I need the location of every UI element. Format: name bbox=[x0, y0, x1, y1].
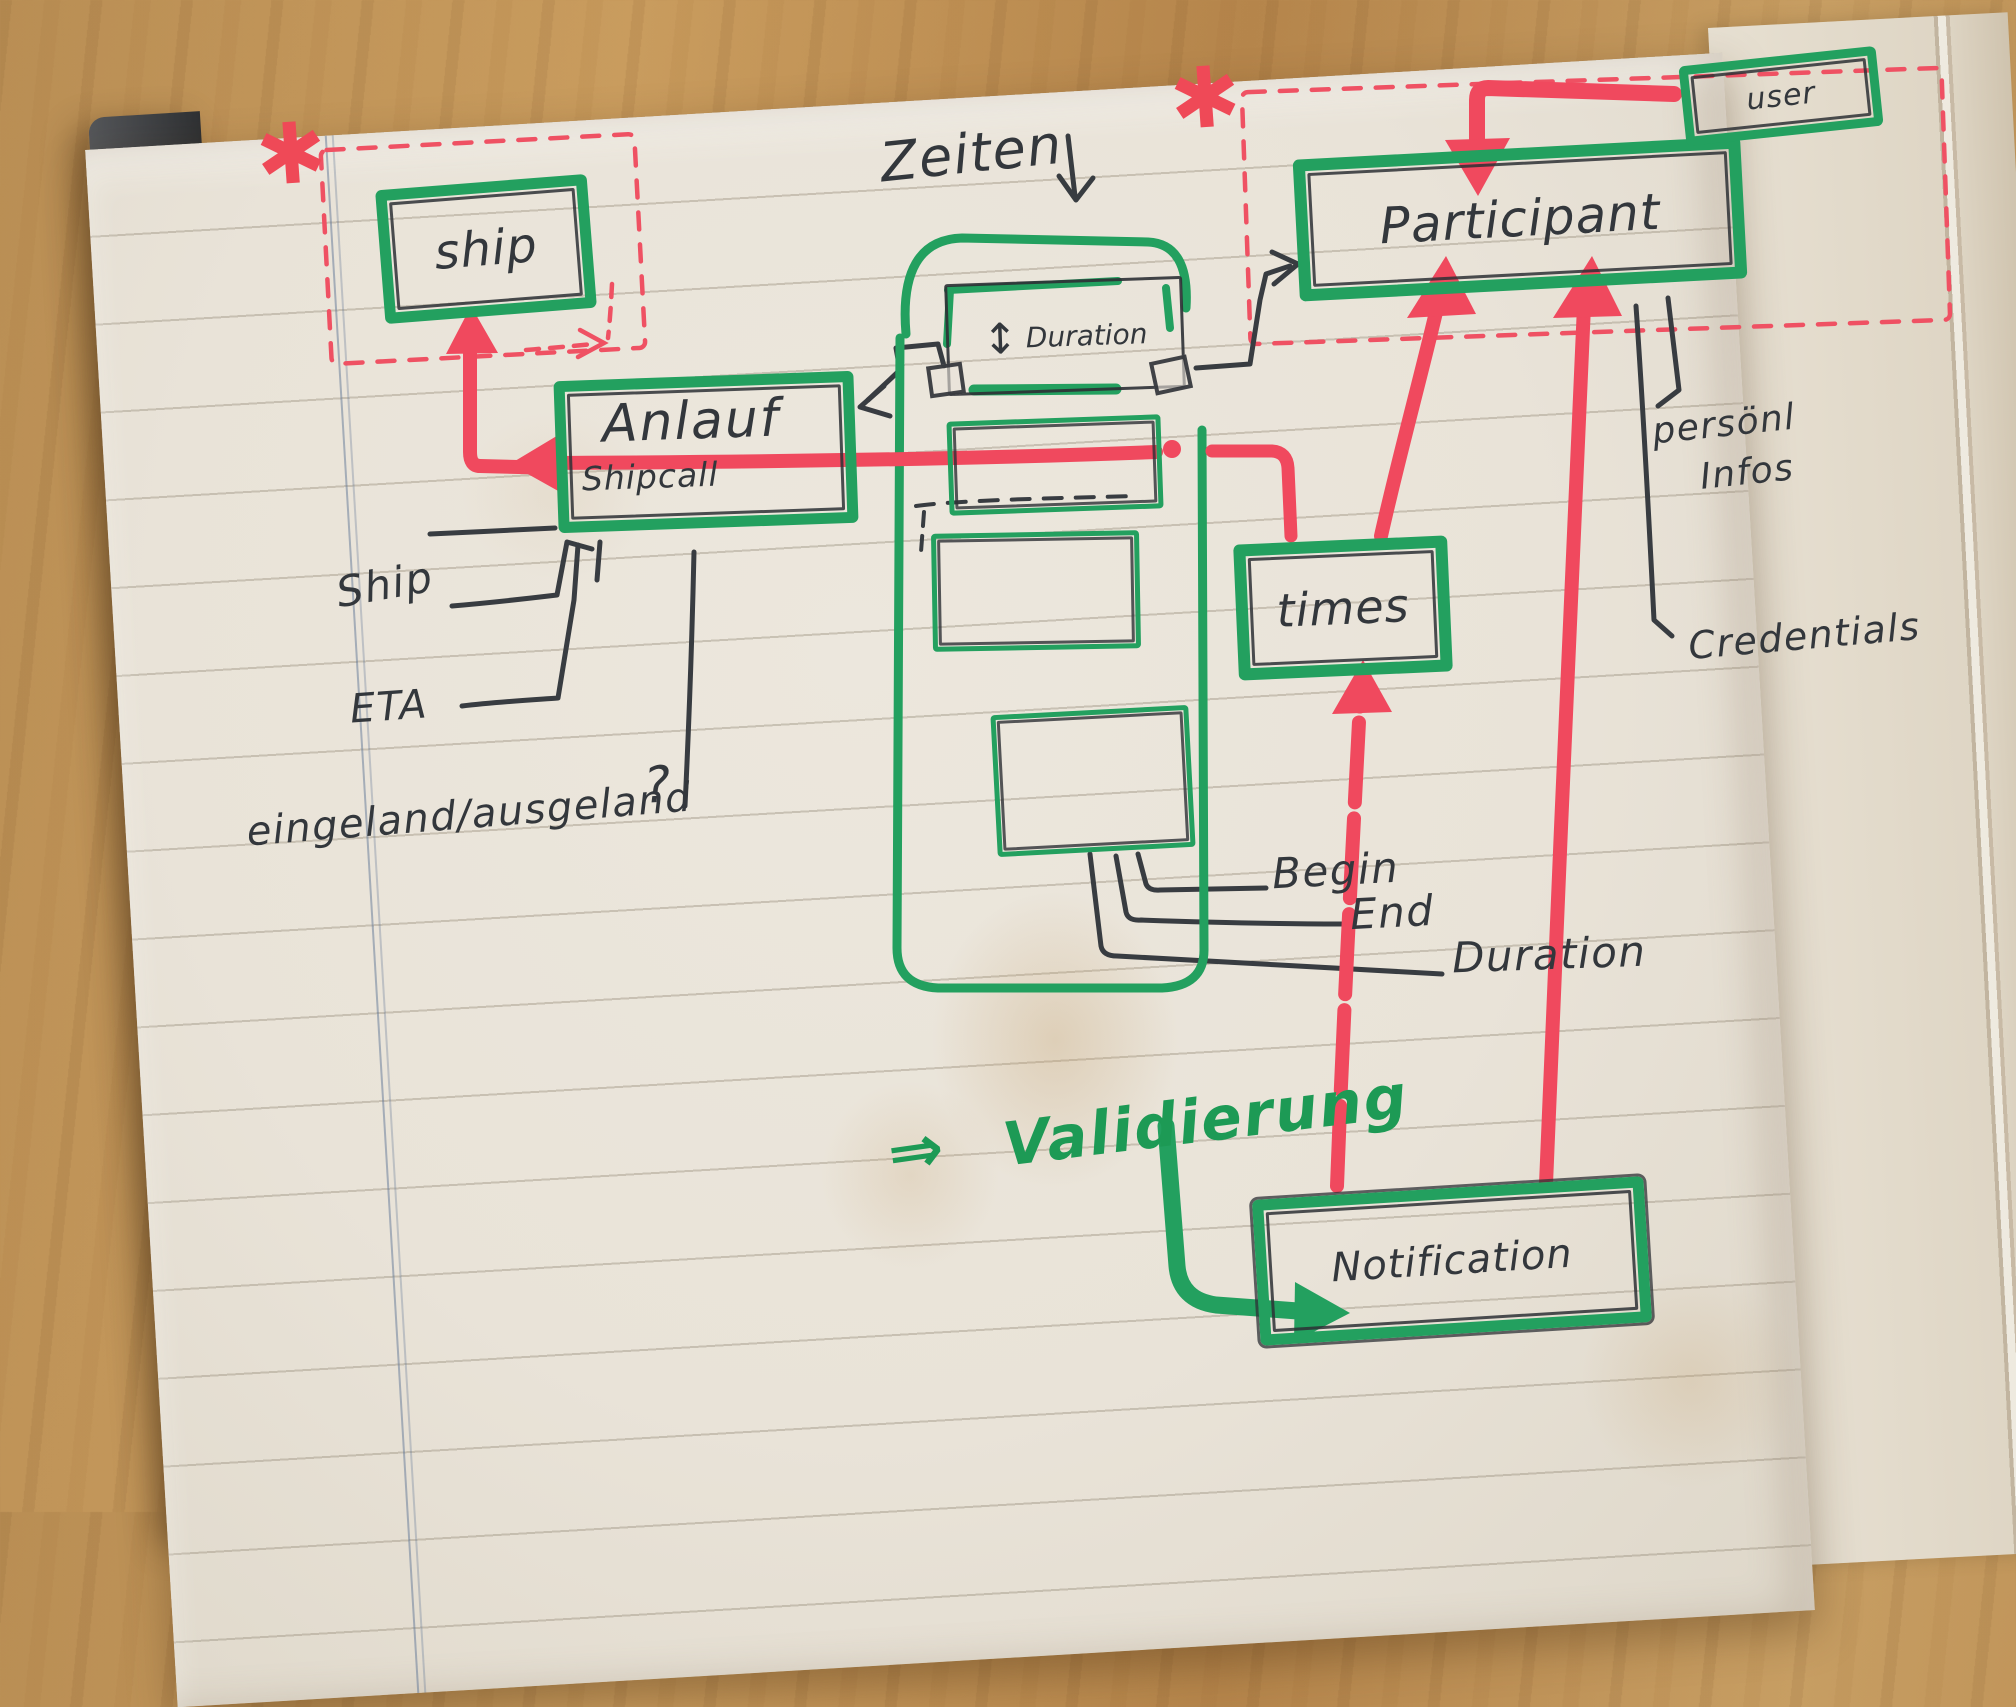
shipcall-label: Shipcall bbox=[581, 455, 719, 499]
ship-label: ship bbox=[387, 186, 585, 313]
asterisk-left: ✱ bbox=[253, 110, 329, 199]
tick-below-anlauf bbox=[597, 542, 600, 580]
times-label: times bbox=[1246, 548, 1441, 668]
bracket-anlauf-bottom bbox=[430, 528, 555, 534]
timeslot-3-outline bbox=[997, 711, 1190, 851]
duration-attr-note: Duration bbox=[1451, 927, 1647, 983]
red-arrow-notification-to-participant bbox=[1546, 306, 1584, 1184]
notification-label: Notification bbox=[1264, 1188, 1641, 1334]
timeslot-box-1 bbox=[946, 414, 1163, 515]
entity-times: times bbox=[1233, 535, 1453, 680]
red-arrowhead-anlauf bbox=[510, 434, 560, 492]
line-participant-to-persoenl bbox=[1658, 298, 1679, 406]
entity-participant: Participant bbox=[1293, 136, 1748, 301]
timeslot-1-outline bbox=[953, 421, 1158, 510]
dashed-split-tick bbox=[921, 512, 924, 552]
duration-box-label: Duration bbox=[1025, 317, 1148, 354]
duration-connector-left bbox=[926, 362, 966, 399]
timeslot-box-2 bbox=[931, 530, 1141, 652]
anlauf-label: Anlauf bbox=[601, 388, 781, 454]
eta-note: ETA bbox=[348, 681, 429, 732]
red-elbow-to-times bbox=[1212, 451, 1291, 536]
entity-anlauf: Anlauf Shipcall bbox=[553, 371, 858, 533]
line-ship-attr bbox=[452, 542, 592, 606]
asterisk-right: ✱ bbox=[1167, 54, 1243, 143]
duration-box: ↕ Duration bbox=[944, 276, 1186, 396]
entity-ship: ship bbox=[375, 174, 597, 324]
question-mark-note: ? bbox=[642, 755, 674, 815]
red-arrow-times-to-participant bbox=[1381, 308, 1437, 536]
validierung-arrow-icon: ⇒ bbox=[883, 1108, 950, 1192]
user-label: user bbox=[1688, 56, 1873, 136]
timeslot-2-outline bbox=[937, 536, 1135, 645]
end-note: End bbox=[1349, 886, 1436, 939]
participant-label: Participant bbox=[1305, 149, 1735, 289]
red-dot bbox=[1163, 440, 1181, 458]
red-dashed-connector-v bbox=[608, 284, 612, 338]
timeslot-box-3 bbox=[990, 705, 1195, 857]
updown-arrow-icon: ↕ bbox=[982, 313, 1019, 363]
line-einaus bbox=[685, 552, 694, 806]
entity-notification: Notification bbox=[1252, 1176, 1652, 1346]
line-participant-to-credentials bbox=[1636, 306, 1672, 636]
